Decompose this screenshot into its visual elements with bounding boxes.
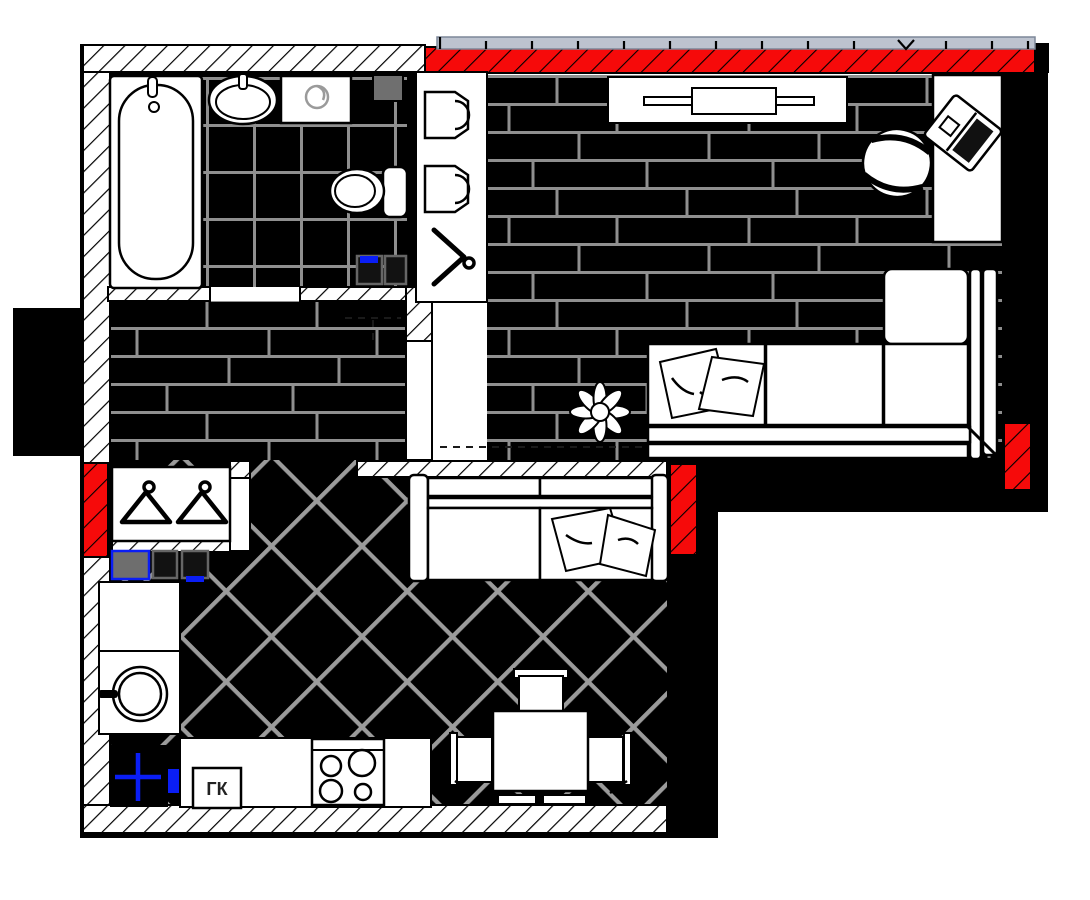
corner-sofa-front-edge	[648, 427, 970, 442]
bottom-exterior-wall	[83, 805, 667, 833]
entrance-landing-block	[13, 308, 85, 456]
tv-body	[692, 88, 776, 114]
switchboard-boxes	[112, 551, 208, 582]
kitchen-top-wall	[357, 461, 667, 477]
table-leg-mark	[498, 795, 536, 804]
kitchen-sofa	[409, 475, 668, 581]
bathroom-right-wall	[407, 70, 416, 302]
hallway-floor	[108, 301, 407, 460]
top-red-wall-segment	[425, 47, 1035, 73]
dining-chair-right	[588, 733, 631, 785]
bottom-right-wall-band	[697, 458, 1048, 512]
kitchen-red-wall-segment	[670, 464, 697, 555]
table-leg-mark	[543, 795, 586, 804]
bathroom-bottom-wall-right	[300, 287, 416, 301]
toilet	[330, 167, 407, 217]
washbasin	[209, 74, 277, 124]
coat-closet-side-wall-hatch	[230, 461, 250, 478]
bathtub-faucet-icon	[148, 77, 157, 97]
cooktop	[312, 739, 384, 805]
gas-valve-mark	[168, 769, 180, 793]
washbasin-faucet-icon	[239, 74, 247, 89]
hall-living-threshold	[406, 341, 432, 460]
sink-faucet-icon	[98, 690, 118, 698]
switchboard-indicator	[186, 576, 204, 582]
gas-boiler-box: ГК	[193, 768, 241, 808]
dining-chair-top	[514, 669, 568, 711]
tv-stand	[608, 77, 847, 123]
kitchen-sofa-armrest	[651, 475, 668, 581]
floor-plan-canvas: ГК	[0, 0, 1090, 900]
bathroom-boiler-boxes	[357, 256, 406, 284]
left-red-wall-segment	[83, 463, 108, 557]
kitchen-sofa-armrest	[409, 475, 428, 581]
gas-boiler-label: ГК	[206, 779, 228, 799]
right-red-wall-segment	[1004, 423, 1031, 490]
dining-chair-left	[450, 733, 492, 785]
top-left-exterior-wall	[83, 45, 425, 72]
bathtub-drain-icon	[149, 102, 159, 112]
storage-shelf-icon	[425, 166, 469, 212]
kitchen-counter-left	[98, 582, 180, 734]
ventilation-box	[373, 75, 403, 101]
coat-rack	[112, 467, 230, 541]
bathtub	[110, 76, 202, 288]
dining-table	[493, 711, 588, 791]
wardrobe-column	[416, 72, 487, 302]
floor-plan-page: ГК	[0, 0, 1090, 900]
boiler-indicator	[360, 256, 378, 263]
plant	[570, 382, 630, 442]
washing-machine	[281, 76, 351, 123]
storage-shelf-icon	[425, 92, 469, 138]
